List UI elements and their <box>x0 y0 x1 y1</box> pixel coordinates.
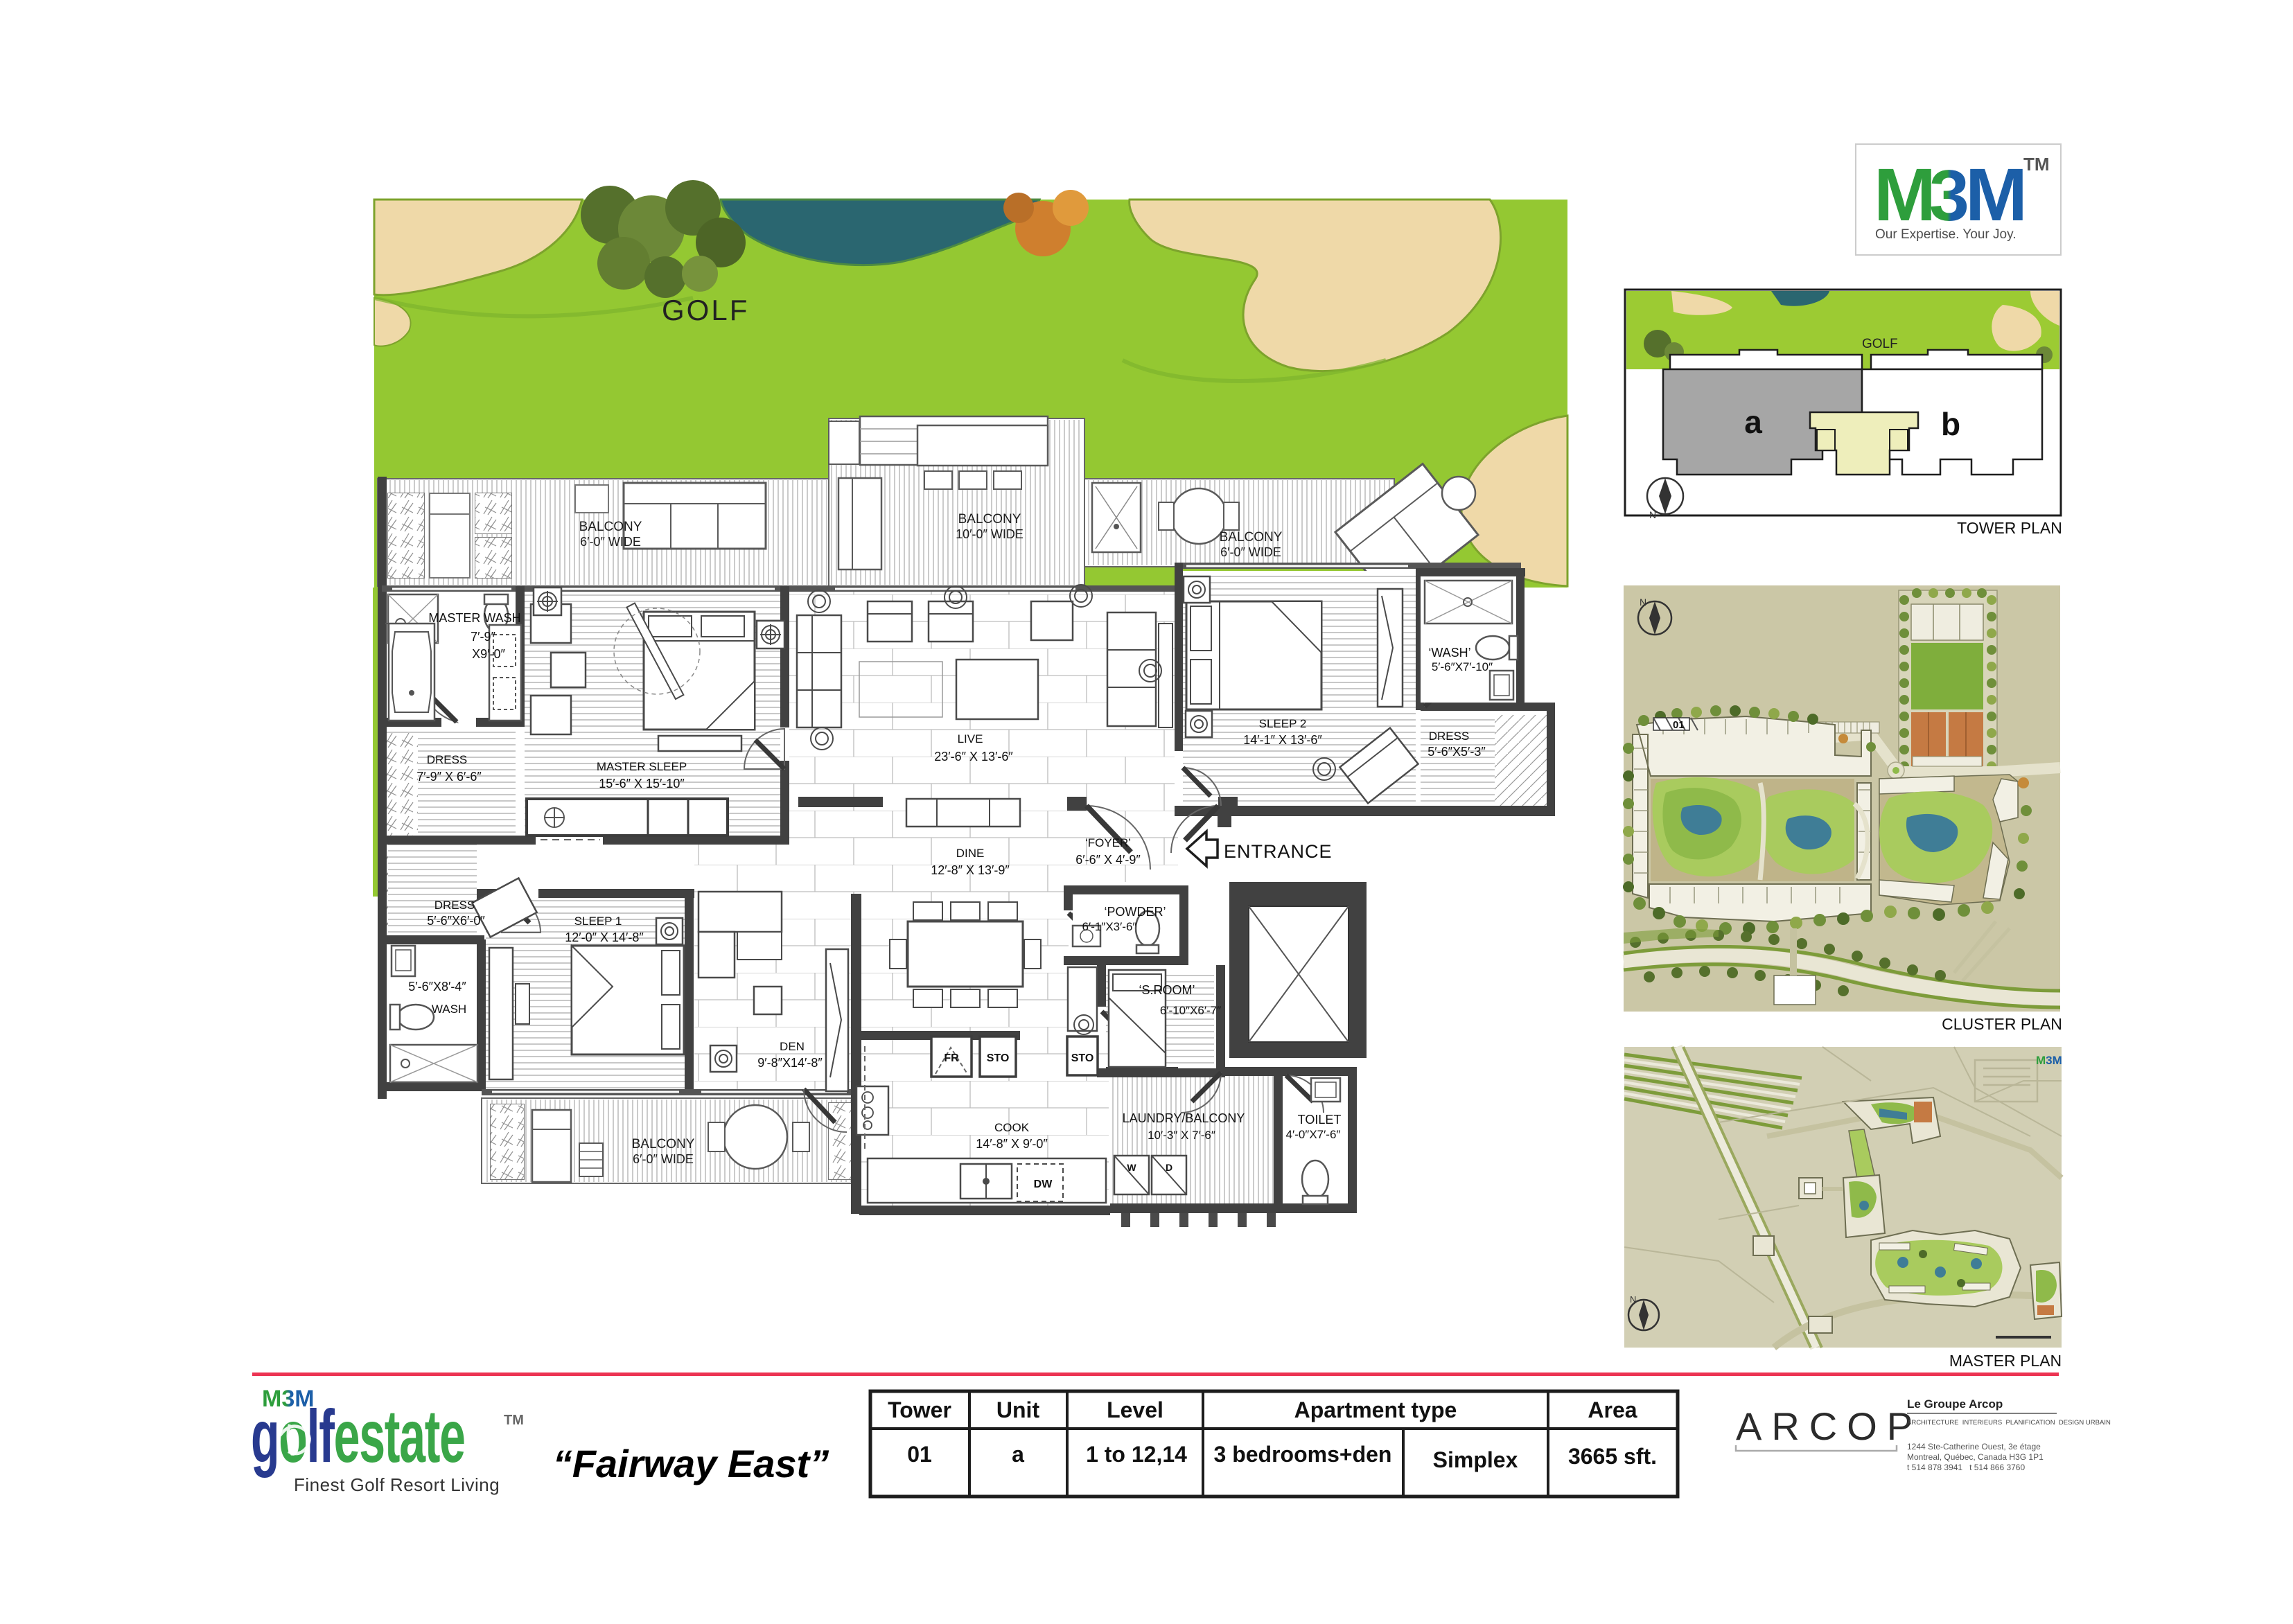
svg-text:Unit: Unit <box>996 1397 1040 1422</box>
svg-text:SLEEP 2: SLEEP 2 <box>1259 717 1307 730</box>
svg-text:MASTER PLAN: MASTER PLAN <box>1949 1352 2062 1370</box>
svg-text:BALCONY: BALCONY <box>958 512 1021 527</box>
svg-text:Montreal, Québec, Canada H3G 1: Montreal, Québec, Canada H3G 1P1 <box>1907 1452 2044 1462</box>
svg-text:5′-6″X5′-3″: 5′-6″X5′-3″ <box>1427 745 1486 759</box>
svg-text:3: 3 <box>1929 156 1969 236</box>
svg-text:D: D <box>1166 1162 1172 1173</box>
svg-text:DINE: DINE <box>956 847 985 860</box>
svg-text:01: 01 <box>907 1442 932 1467</box>
svg-text:TOWER PLAN: TOWER PLAN <box>1957 519 2062 537</box>
svg-text:1244 Ste-Catherine Ouest, 3e é: 1244 Ste-Catherine Ouest, 3e étage <box>1907 1442 2041 1451</box>
svg-text:N: N <box>1640 597 1646 608</box>
svg-text:STO: STO <box>1071 1052 1094 1064</box>
svg-text:14′-8″ X 9′-0″: 14′-8″ X 9′-0″ <box>976 1137 1048 1151</box>
svg-text:7′-9″ X 6′-6″: 7′-9″ X 6′-6″ <box>416 770 482 784</box>
svg-text:GOLF: GOLF <box>1862 337 1898 351</box>
svg-text:M: M <box>1965 152 2028 236</box>
svg-text:COOK: COOK <box>994 1121 1030 1134</box>
svg-text:a: a <box>1012 1442 1024 1467</box>
svg-text:golfestate: golfestate <box>251 1395 465 1479</box>
svg-text:ENTRANCE: ENTRANCE <box>1224 841 1333 862</box>
svg-text:FR: FR <box>944 1052 959 1064</box>
svg-text:15′-6″ X 15′-10″: 15′-6″ X 15′-10″ <box>599 777 685 791</box>
svg-text:Our Expertise. Your Joy.: Our Expertise. Your Joy. <box>1875 227 2016 242</box>
svg-text:DRESS: DRESS <box>1429 730 1470 743</box>
svg-text:1 to 12,14: 1 to 12,14 <box>1086 1442 1187 1467</box>
svg-text:BALCONY: BALCONY <box>1220 530 1283 545</box>
svg-text:TOILET: TOILET <box>1298 1113 1342 1127</box>
svg-text:BALCONY: BALCONY <box>632 1137 695 1151</box>
svg-text:‘S.ROOM’: ‘S.ROOM’ <box>1139 983 1195 997</box>
svg-text:a: a <box>1744 404 1762 440</box>
svg-text:CLUSTER PLAN: CLUSTER PLAN <box>1942 1015 2062 1033</box>
svg-text:Level: Level <box>1107 1397 1163 1422</box>
svg-text:Tower: Tower <box>888 1397 951 1422</box>
svg-text:TM: TM <box>2023 154 2050 175</box>
svg-text:ARCHITECTURE INTERIEURS PLAN: ARCHITECTURE INTERIEURS PLANIFICATION DE… <box>1907 1419 2111 1427</box>
svg-text:BALCONY: BALCONY <box>579 520 642 534</box>
svg-text:6′-10″X6′-7″: 6′-10″X6′-7″ <box>1160 1004 1221 1017</box>
svg-text:b: b <box>1941 406 1960 442</box>
svg-text:LAUNDRY/BALCONY: LAUNDRY/BALCONY <box>1123 1111 1245 1125</box>
svg-text:14′-1″ X 13′-6″: 14′-1″ X 13′-6″ <box>1243 733 1322 747</box>
svg-text:Le Groupe Arcop: Le Groupe Arcop <box>1907 1397 2003 1411</box>
svg-text:5′-6″X7′-10″: 5′-6″X7′-10″ <box>1432 660 1493 673</box>
svg-text:‘FOYER’: ‘FOYER’ <box>1085 836 1131 849</box>
svg-text:10′-3″ X 7′-6″: 10′-3″ X 7′-6″ <box>1148 1129 1215 1142</box>
svg-text:3665 sft.: 3665 sft. <box>1568 1444 1657 1469</box>
svg-text:N: N <box>1630 1294 1636 1305</box>
svg-text:LIVE: LIVE <box>958 732 983 745</box>
svg-text:7′-9″: 7′-9″ <box>471 630 495 644</box>
svg-text:M: M <box>1874 152 1936 236</box>
svg-text:WASH: WASH <box>432 1003 466 1016</box>
svg-text:23′-6″ X 13′-6″: 23′-6″ X 13′-6″ <box>934 750 1013 764</box>
svg-text:MASTER SLEEP: MASTER SLEEP <box>597 760 687 773</box>
svg-text:DRESS: DRESS <box>427 753 468 766</box>
svg-text:5′-6″X6′-0″: 5′-6″X6′-0″ <box>427 914 485 928</box>
svg-text:DW: DW <box>1034 1179 1053 1190</box>
svg-text:STO: STO <box>987 1052 1010 1064</box>
svg-text:4′-0″X7′-6″: 4′-0″X7′-6″ <box>1286 1128 1341 1141</box>
svg-text:GOLF: GOLF <box>662 294 749 326</box>
svg-text:DEN: DEN <box>780 1040 805 1053</box>
svg-text:6′-1″X3′-6″: 6′-1″X3′-6″ <box>1082 920 1137 933</box>
svg-text:12′-8″ X 13′-9″: 12′-8″ X 13′-9″ <box>931 863 1010 877</box>
svg-text:M3M: M3M <box>2036 1054 2062 1067</box>
svg-text:MASTER WASH: MASTER WASH <box>428 611 520 625</box>
svg-text:Simplex: Simplex <box>1433 1447 1518 1472</box>
svg-text:ARCOP: ARCOP <box>1736 1404 1922 1448</box>
svg-text:01: 01 <box>1673 719 1685 731</box>
svg-text:12′-0″ X 14′-8″: 12′-0″ X 14′-8″ <box>565 930 644 944</box>
svg-text:SLEEP 1: SLEEP 1 <box>574 915 622 928</box>
svg-text:TM: TM <box>504 1413 524 1428</box>
svg-text:9′-8″X14′-8″: 9′-8″X14′-8″ <box>757 1056 823 1070</box>
svg-text:10′-0″ WIDE: 10′-0″ WIDE <box>956 527 1023 541</box>
svg-text:6′-0″ WIDE: 6′-0″ WIDE <box>633 1152 694 1166</box>
svg-text:N: N <box>1649 509 1656 520</box>
svg-text:X9′-0″: X9′-0″ <box>472 647 505 661</box>
svg-text:5′-6″X8′-4″: 5′-6″X8′-4″ <box>408 980 466 994</box>
svg-text:DRESS: DRESS <box>434 899 475 912</box>
svg-text:‘WASH’: ‘WASH’ <box>1428 646 1470 660</box>
svg-text:“Fairway East”: “Fairway East” <box>553 1442 829 1485</box>
svg-text:3 bedrooms+den: 3 bedrooms+den <box>1214 1442 1392 1467</box>
svg-text:t 514 878 3941 t 514 866 376: t 514 878 3941 t 514 866 3760 <box>1907 1463 2025 1472</box>
svg-text:6′-6″ X 4′-9″: 6′-6″ X 4′-9″ <box>1075 853 1141 867</box>
svg-text:Apartment type: Apartment type <box>1294 1397 1457 1422</box>
svg-text:6′-0″ WIDE: 6′-0″ WIDE <box>1220 545 1281 559</box>
svg-text:6′-0″ WIDE: 6′-0″ WIDE <box>580 535 641 549</box>
svg-text:‘POWDER’: ‘POWDER’ <box>1105 905 1166 919</box>
svg-text:Finest Golf Resort Living: Finest Golf Resort Living <box>294 1474 500 1495</box>
svg-text:Area: Area <box>1588 1397 1637 1422</box>
svg-text:W: W <box>1127 1162 1136 1173</box>
